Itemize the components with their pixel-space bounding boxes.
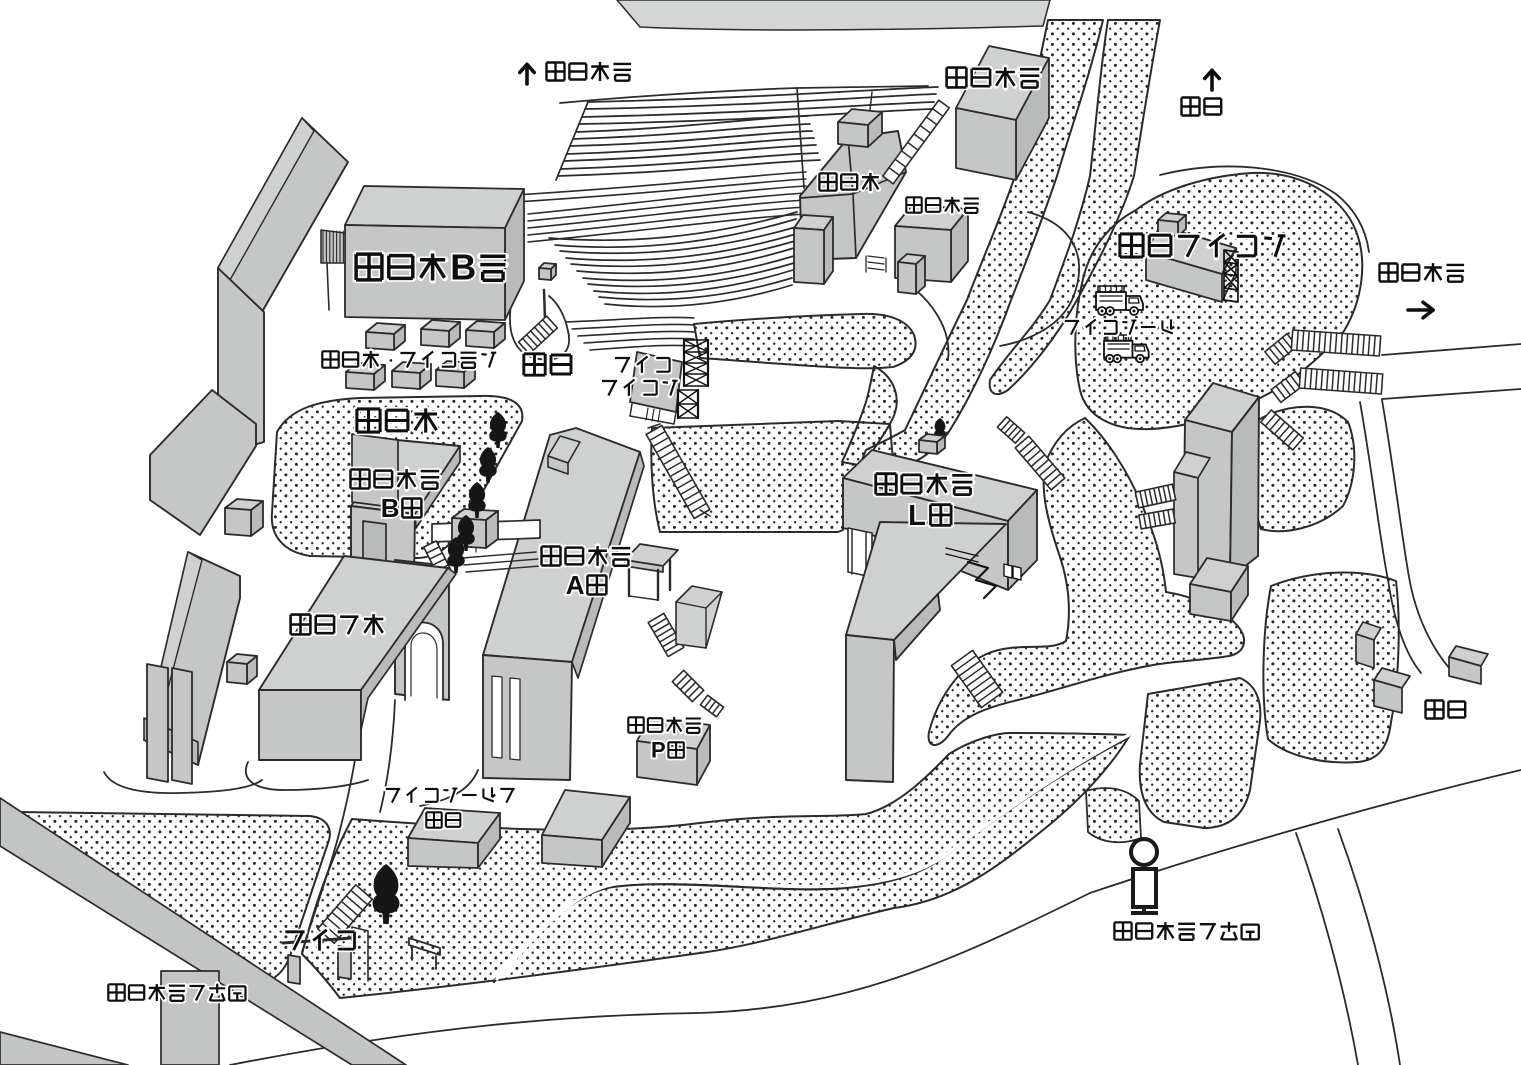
svg-text:B: B [381,493,400,523]
svg-text:B: B [450,247,476,288]
svg-text:A: A [566,570,585,600]
svg-text:L: L [908,500,926,532]
svg-text:P: P [651,738,666,763]
